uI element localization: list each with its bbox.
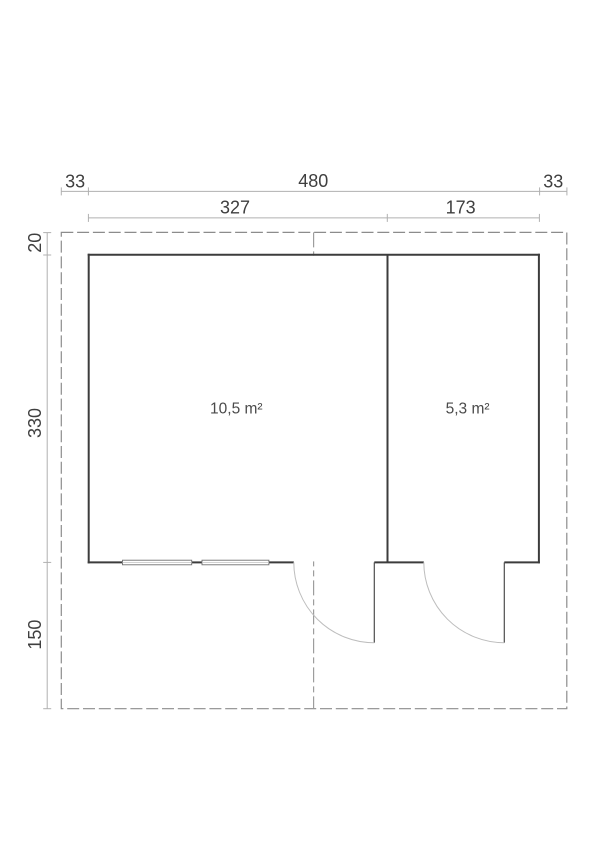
- svg-text:173: 173: [446, 197, 476, 217]
- svg-text:33: 33: [65, 171, 85, 191]
- svg-text:330: 330: [25, 408, 45, 438]
- svg-text:150: 150: [25, 620, 45, 650]
- svg-text:327: 327: [220, 197, 250, 217]
- svg-text:10,5 m²: 10,5 m²: [210, 400, 263, 417]
- svg-text:20: 20: [25, 233, 45, 253]
- svg-text:33: 33: [543, 171, 563, 191]
- svg-text:480: 480: [298, 171, 328, 191]
- svg-text:5,3 m²: 5,3 m²: [446, 401, 490, 418]
